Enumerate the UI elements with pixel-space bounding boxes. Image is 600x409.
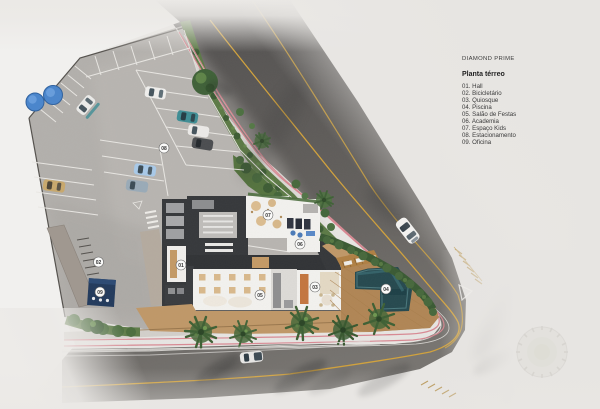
svg-text:07. Espaço Kids: 07. Espaço Kids bbox=[462, 125, 506, 132]
svg-text:05: 05 bbox=[257, 293, 263, 299]
svg-text:01. Hall: 01. Hall bbox=[462, 83, 483, 90]
svg-text:01: 01 bbox=[178, 263, 184, 269]
svg-text:08. Estacionamento: 08. Estacionamento bbox=[462, 132, 516, 139]
svg-text:09. Oficina: 09. Oficina bbox=[462, 139, 492, 146]
svg-text:06: 06 bbox=[297, 242, 303, 248]
svg-text:03. Quiosque: 03. Quiosque bbox=[462, 97, 499, 104]
svg-text:09: 09 bbox=[97, 290, 103, 296]
svg-text:08: 08 bbox=[161, 146, 167, 152]
svg-text:04: 04 bbox=[383, 287, 389, 293]
svg-text:DIAMOND PRIME: DIAMOND PRIME bbox=[462, 56, 515, 62]
svg-text:02: 02 bbox=[96, 260, 102, 266]
svg-text:05. Salão de Festas: 05. Salão de Festas bbox=[462, 111, 516, 118]
svg-text:06. Academia: 06. Academia bbox=[462, 118, 500, 125]
svg-text:03: 03 bbox=[312, 285, 318, 291]
svg-text:04. Piscina: 04. Piscina bbox=[462, 104, 492, 111]
svg-text:07: 07 bbox=[265, 213, 271, 219]
svg-text:Planta térreo: Planta térreo bbox=[462, 71, 505, 78]
svg-text:02. Bicicletário: 02. Bicicletário bbox=[462, 90, 502, 97]
